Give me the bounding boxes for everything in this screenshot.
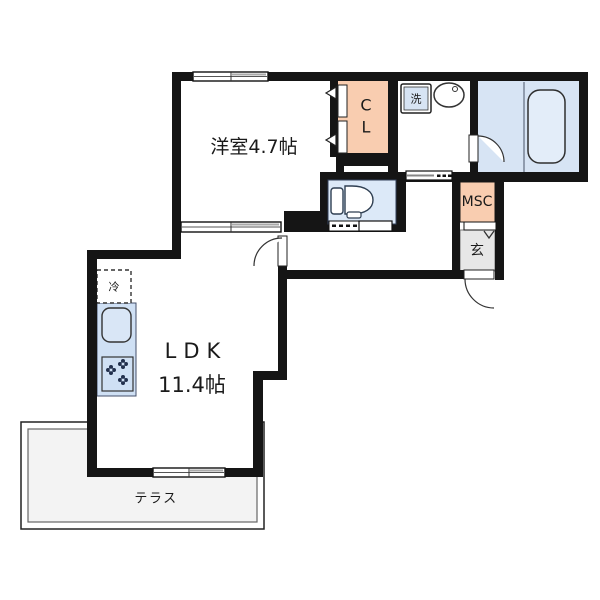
western-room-label: 洋室4.7帖 [210,136,297,158]
door-washroom-slider [406,171,452,180]
sink-faucet-icon [453,87,458,92]
laundry-label: 洗 [411,93,422,106]
window-western-room-top [193,72,268,81]
floor-plan: 洋室4.7帖 LDK 11.4帖 C L 洗 MSC 玄 冷 テラス [0,0,600,600]
floor-plan-canvas: 洋室4.7帖 LDK 11.4帖 C L 洗 MSC 玄 冷 テラス [0,0,600,600]
wall-ldk-right-upper [278,266,287,380]
door-toilet-slider [329,221,392,231]
wall-entrance-left [452,182,460,278]
refrigerator-label: 冷 [109,281,120,294]
storage-label: MSC [462,194,493,210]
toilet-room [328,180,396,224]
wall-right [579,72,588,182]
wall-closet-bottom-stub [336,153,344,174]
ldk-size-label: 11.4帖 [158,373,226,397]
terrace-label: テラス [134,492,177,507]
entrance-label: 玄 [470,242,484,259]
wall-closet-bottom [336,153,398,166]
kitchen-sink-icon [102,308,131,342]
stove-icon [102,357,133,391]
wall-ldk-left [87,250,97,477]
closet-label-c: C [360,96,371,115]
bathtub-icon [528,90,565,163]
door-toilet-leaf [359,221,392,231]
wall-western-room-left [172,72,181,259]
wall-kitchen-top [87,250,181,259]
wall-entrance-right [495,182,504,280]
ldk-label: LDK [165,339,228,363]
sink-icon [434,83,464,107]
wall-ldk-right-lower [253,371,263,477]
closet-label-l: L [362,118,371,137]
wall-hallway-bottom [278,270,465,279]
window-ldk-bottom [153,468,225,477]
wall-washroom-bath-divider [470,72,478,182]
window-western-room-bottom [181,222,281,232]
door-entrance [464,270,494,308]
bathroom-fixtures [524,82,565,172]
